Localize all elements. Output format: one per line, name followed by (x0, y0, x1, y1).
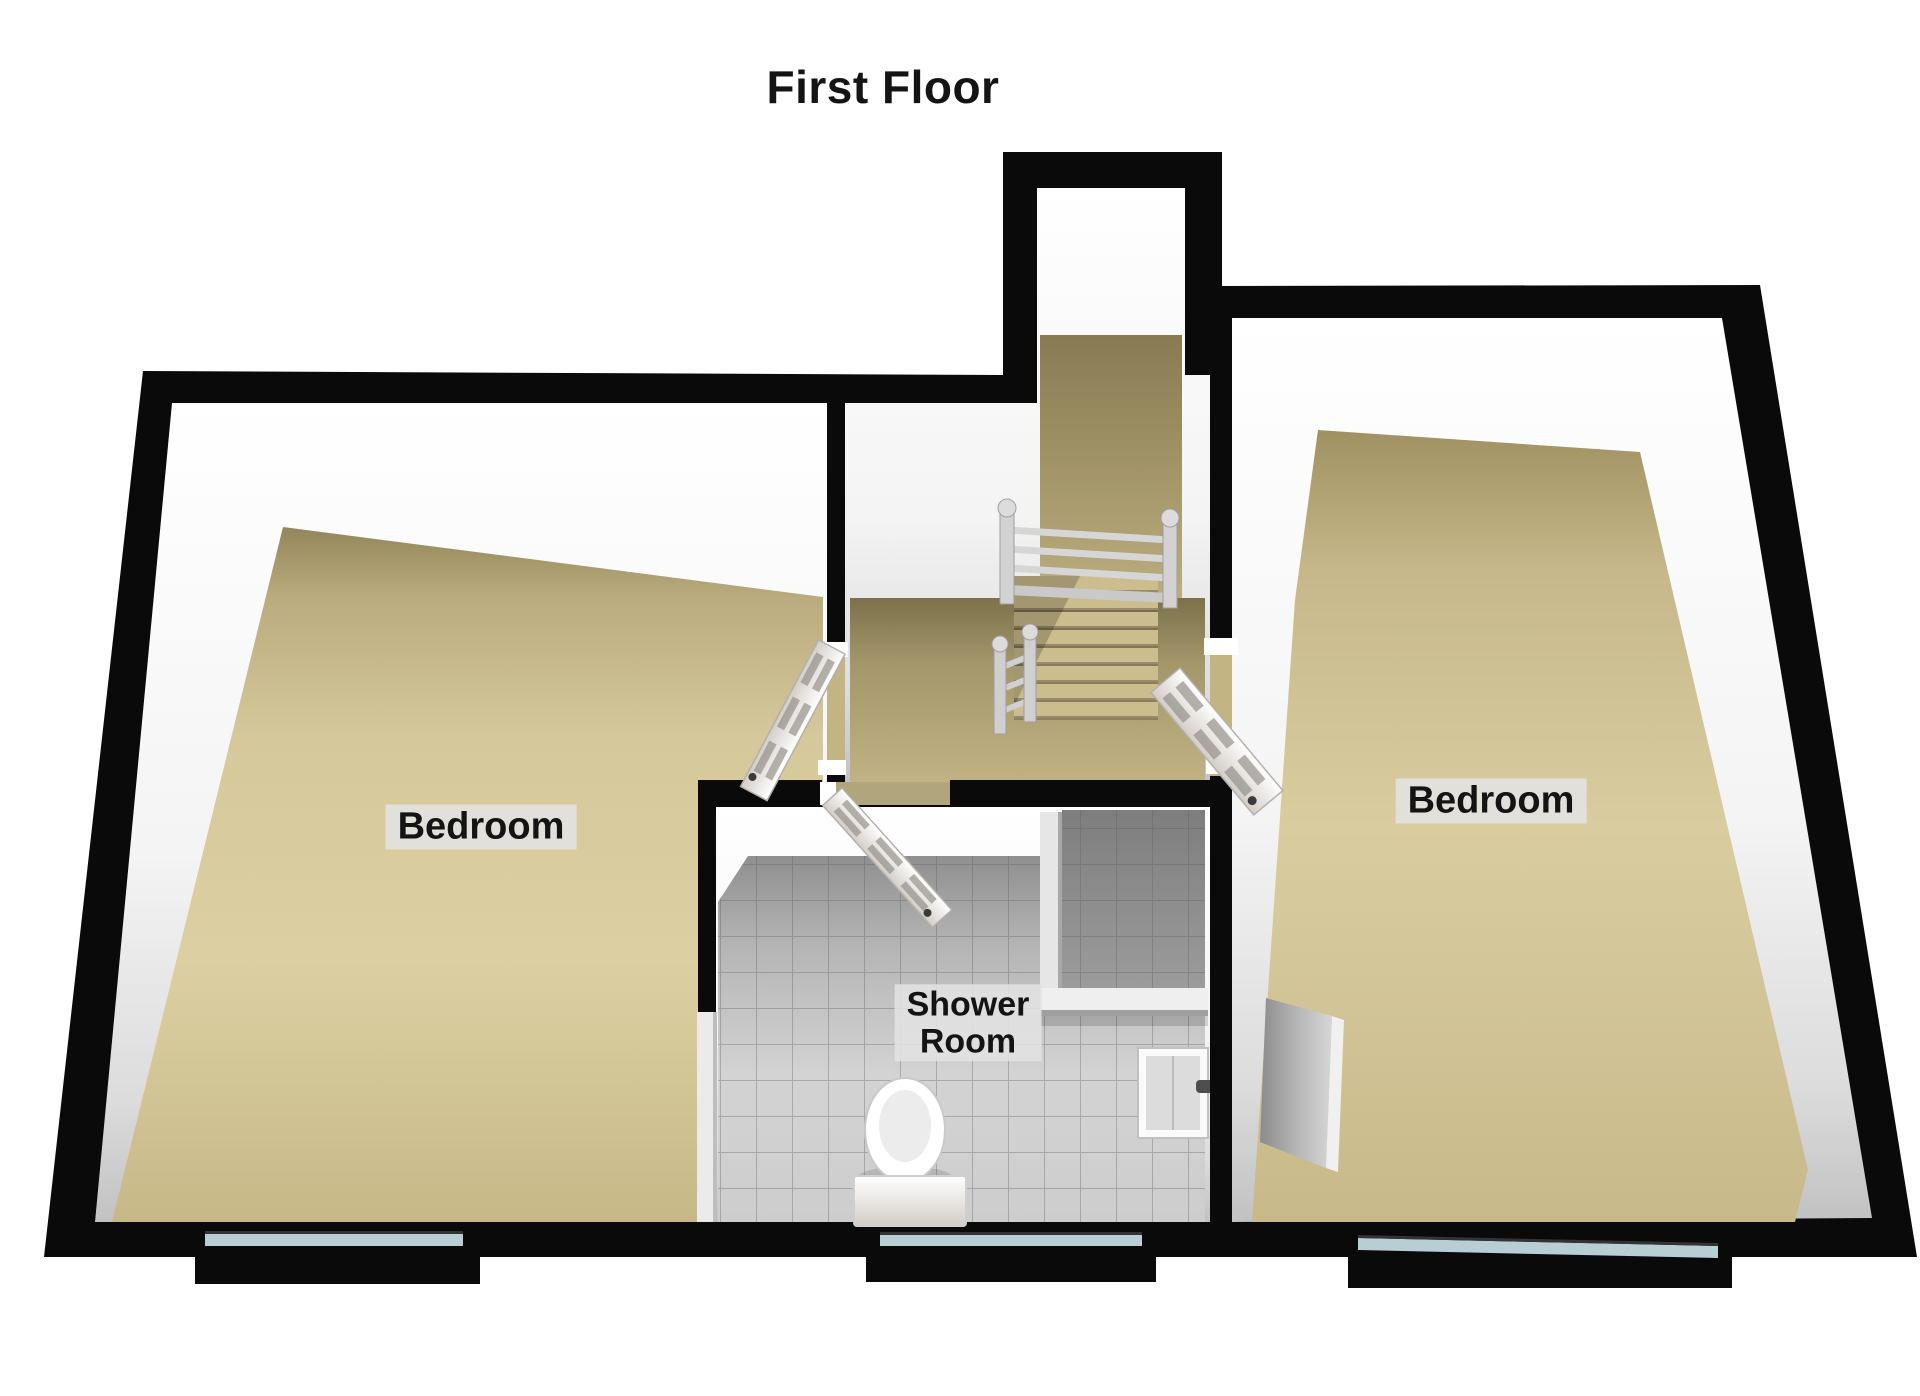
room-label-bedroom-left: Bedroom (386, 804, 577, 849)
window-shower-room (880, 1234, 1142, 1246)
wall-landing-bedroom-right-upper (1210, 286, 1232, 654)
wall-landing-bedroom-right-lower (1210, 776, 1232, 1222)
shower-enclosure (1040, 810, 1208, 1026)
door-jamb (818, 760, 846, 775)
newel-post (1000, 512, 1014, 604)
newel-post (1163, 522, 1177, 608)
newel-post (994, 648, 1006, 734)
wall-shower-top-right (950, 780, 1228, 807)
stairwell-floor (1040, 335, 1182, 603)
wall-bedroom-left-shower (698, 780, 716, 1012)
floor-plan-page: First Floor Bedroom Bedroom Shower Room (0, 0, 1920, 1396)
room-label-shower-room: Shower Room (895, 984, 1042, 1061)
room-label-bedroom-right: Bedroom (1396, 778, 1587, 823)
toilet-cistern (854, 1176, 966, 1226)
floor-plan-rendering (0, 0, 1920, 1396)
window-bedroom-left (205, 1233, 463, 1246)
newel-post (1024, 636, 1036, 722)
closet-door-open (1260, 998, 1344, 1172)
wall-bedroom-left-landing (827, 403, 845, 642)
page-title: First Floor (767, 63, 1000, 113)
door-jamb (1204, 638, 1238, 655)
